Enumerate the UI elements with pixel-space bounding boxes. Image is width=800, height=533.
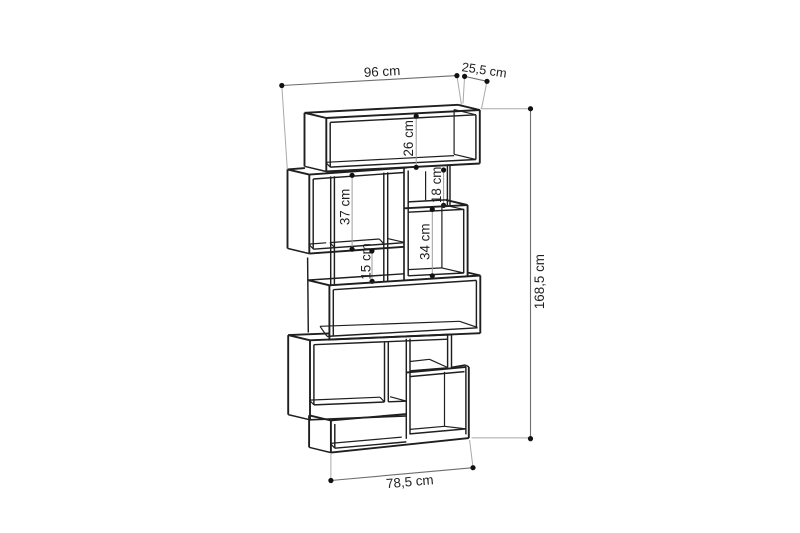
svg-text:18 cm: 18 cm (429, 167, 444, 203)
svg-text:37 cm: 37 cm (338, 189, 353, 225)
svg-text:15 cm: 15 cm (358, 243, 373, 279)
svg-text:168,5 cm: 168,5 cm (532, 254, 547, 309)
svg-text:96 cm: 96 cm (363, 63, 400, 80)
svg-text:26 cm: 26 cm (401, 120, 416, 156)
svg-text:34 cm: 34 cm (418, 223, 433, 259)
